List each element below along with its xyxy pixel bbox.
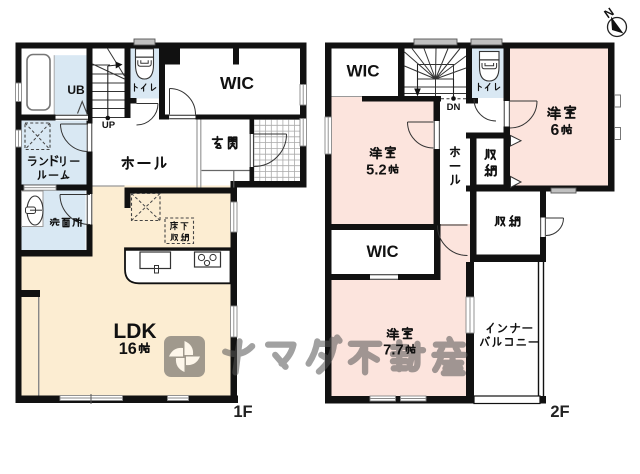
svg-text:5: 5 [366, 162, 374, 178]
svg-text:UB: UB [67, 83, 85, 97]
svg-text:6: 6 [128, 340, 137, 358]
svg-text:1: 1 [119, 340, 128, 358]
svg-text:7: 7 [383, 342, 391, 358]
svg-text:DN: DN [447, 102, 461, 113]
svg-text:2: 2 [379, 162, 387, 178]
svg-text:WIC: WIC [346, 62, 379, 81]
svg-text:UP: UP [102, 120, 116, 131]
svg-text:1F: 1F [233, 403, 252, 421]
svg-text:WIC: WIC [220, 73, 254, 93]
svg-text:7: 7 [396, 342, 404, 358]
svg-text:2F: 2F [550, 403, 569, 421]
svg-text:6: 6 [551, 122, 560, 139]
svg-text:ド: ド [47, 153, 60, 168]
svg-text:WIC: WIC [366, 243, 398, 261]
